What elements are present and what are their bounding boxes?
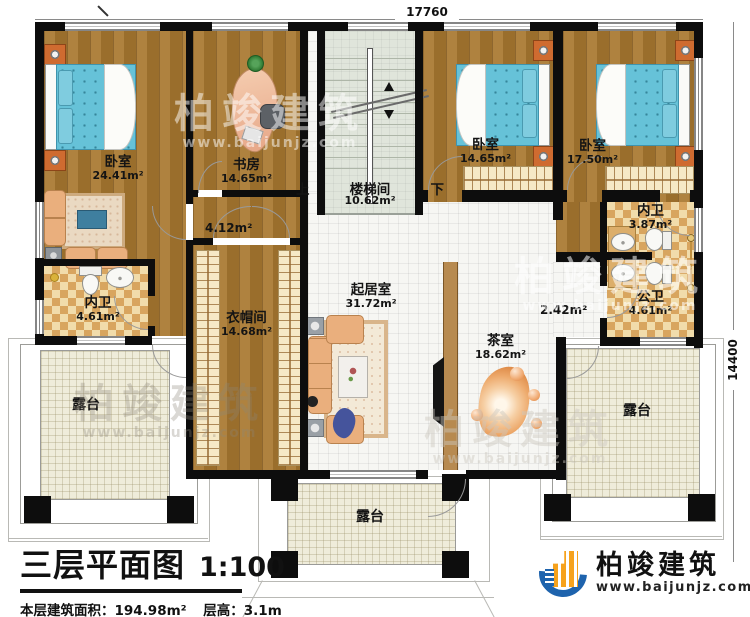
- wall: [553, 190, 563, 220]
- nightstand: [675, 146, 696, 167]
- scale-label: 1:100: [199, 552, 285, 583]
- table-runner: [77, 210, 107, 229]
- wall: [600, 262, 607, 286]
- terrace-left-floor: [40, 350, 170, 500]
- room-label-bedroom-right: 卧室 17.50m²: [545, 139, 640, 166]
- room-area: 14.65m²: [193, 173, 300, 185]
- wall: [290, 238, 300, 245]
- dimension-label-right: 14400: [726, 330, 742, 390]
- room-label-bedroom-mid: 卧室 14.65m²: [438, 138, 533, 165]
- bed-pillow: [522, 104, 537, 138]
- stairwell-area: 10.62m²: [296, 195, 444, 207]
- bed-blanket: [456, 64, 486, 146]
- hall-left-area: 4.12m²: [205, 221, 252, 235]
- bed-blanket: [104, 64, 136, 150]
- room-name: 卧室: [579, 138, 606, 154]
- page-title: 三层平面图: [20, 540, 185, 586]
- floor-drain: [50, 273, 59, 282]
- wall: [193, 238, 213, 245]
- wall: [35, 336, 77, 345]
- wall: [556, 252, 607, 262]
- floor-height-label: 层高：3.1m: [203, 603, 281, 617]
- room-area: 31.72m²: [311, 298, 431, 310]
- room-name: 茶室: [487, 333, 514, 349]
- room-area: 14.68m²: [193, 326, 300, 338]
- toilet-tank: [662, 231, 672, 250]
- dimension-tick: [97, 5, 108, 16]
- window: [35, 202, 44, 258]
- room-name: 书房: [233, 157, 260, 173]
- wall: [186, 470, 330, 479]
- bed-pillow: [662, 69, 677, 103]
- towel-rail: [690, 240, 692, 286]
- terrace-right-pillar: [544, 494, 571, 521]
- terrace-left-pillar: [24, 496, 51, 523]
- armchair: [326, 315, 364, 344]
- wall: [686, 337, 703, 346]
- window: [640, 337, 686, 346]
- window: [598, 22, 676, 31]
- floor-cushion: [471, 409, 483, 421]
- room-area: 3.87m²: [607, 219, 694, 231]
- bathroom-sink: [611, 264, 635, 282]
- room-area: 4.61m²: [607, 305, 694, 317]
- bed-pillow: [58, 70, 73, 106]
- room-name: 起居室: [351, 282, 392, 298]
- wall: [186, 240, 193, 479]
- title-underline: [20, 589, 242, 593]
- window: [694, 58, 703, 150]
- room-area: 24.41m²: [62, 170, 174, 182]
- wardrobe: [278, 250, 302, 466]
- room-label-terrace-center: 露台: [305, 510, 435, 526]
- terrace-right-apron-line: [540, 536, 722, 537]
- wall: [300, 193, 308, 479]
- window: [65, 22, 160, 31]
- room-label-living: 起居室 31.72m²: [311, 283, 431, 310]
- room-name: 内卫: [85, 295, 112, 311]
- plant: [247, 55, 264, 72]
- bathroom-sink: [611, 233, 635, 251]
- room-label-terrace-left: 露台: [26, 398, 146, 414]
- floor-cushion: [531, 418, 542, 429]
- room-area: 4.61m²: [48, 311, 148, 323]
- floor-cushion: [510, 367, 524, 381]
- logo-mark-icon: [538, 548, 588, 598]
- terrace-left-apron-line: [8, 538, 208, 539]
- logo-website: www.baijunjz.com: [596, 580, 750, 595]
- coffee-table: [338, 356, 368, 398]
- window: [444, 22, 530, 31]
- room-name: 衣帽间: [226, 310, 267, 326]
- room-name: 卧室: [105, 154, 132, 170]
- wall: [600, 318, 607, 337]
- toilet-tank: [662, 265, 672, 284]
- bed-pillow: [522, 69, 537, 103]
- window: [212, 22, 288, 31]
- floor-area-label: 本层建筑面积：194.98m²: [20, 603, 187, 617]
- wall: [600, 337, 640, 346]
- window: [330, 470, 416, 479]
- room-label-ensuite-left: 内卫 4.61m²: [48, 296, 148, 323]
- logo-company-name: 柏竣建筑: [596, 551, 750, 581]
- room-label-tea: 茶室 18.62m²: [448, 334, 553, 361]
- wall: [462, 190, 556, 202]
- wall: [44, 259, 155, 266]
- room-label-bedroom-left: 卧室 24.41m²: [62, 155, 174, 182]
- wall: [416, 470, 428, 479]
- floor-cushion: [528, 389, 540, 401]
- bathroom-sink: [106, 267, 134, 288]
- hall-right-area: 2.42m²: [540, 303, 587, 317]
- side-table: [306, 317, 324, 335]
- terrace-right-pillar: [688, 494, 715, 521]
- room-name: 内卫: [637, 203, 664, 219]
- wall: [607, 252, 652, 260]
- wall: [466, 470, 566, 479]
- floor-lamp: [307, 396, 318, 407]
- stair-direction-arrow: [384, 110, 394, 119]
- dimension-line-top: [35, 19, 703, 20]
- loveseat: [44, 190, 66, 246]
- wardrobe: [196, 250, 220, 466]
- wall: [300, 22, 308, 193]
- wall: [556, 337, 566, 480]
- room-label-study: 书房 14.65m²: [193, 158, 300, 185]
- bed-pillow: [58, 108, 73, 144]
- wall: [148, 326, 155, 336]
- wall: [222, 190, 300, 197]
- tv-icon: [433, 357, 444, 427]
- terrace-center-pillar: [442, 551, 469, 578]
- dimension-line-right: [733, 22, 734, 562]
- room-label-cloakroom: 衣帽间 14.68m²: [193, 311, 300, 338]
- terrace-center-apron-line: [474, 580, 495, 617]
- window: [35, 300, 44, 334]
- wall: [186, 31, 193, 204]
- outer-wall-left: [35, 31, 44, 345]
- floor-plan-canvas: 17760 14400: [0, 0, 750, 617]
- room-area: 14.65m²: [438, 153, 533, 165]
- bed-blanket: [596, 64, 626, 146]
- window: [694, 208, 703, 252]
- nightstand: [533, 40, 554, 61]
- company-logo: 柏竣建筑 www.baijunjz.com: [538, 548, 750, 598]
- wall: [148, 266, 155, 296]
- vestibule-floor: [553, 262, 607, 337]
- wall: [125, 336, 152, 345]
- wall: [600, 202, 607, 252]
- living-strip-floor: [308, 31, 317, 193]
- stair-landing-edge: [325, 213, 415, 215]
- wall: [690, 190, 694, 202]
- room-area: 17.50m²: [545, 154, 640, 166]
- room-name: 公卫: [637, 289, 664, 305]
- nightstand: [675, 40, 696, 61]
- stair-direction-arrow: [384, 82, 394, 91]
- room-name: 卧室: [472, 137, 499, 153]
- window: [348, 22, 408, 31]
- terrace-left-pillar: [167, 496, 194, 523]
- wall: [602, 190, 660, 202]
- room-label-ensuite-right: 内卫 3.87m²: [607, 204, 694, 231]
- side-table: [306, 419, 324, 437]
- bed-pillow: [662, 104, 677, 138]
- room-label-public-bath: 公卫 4.61m²: [607, 290, 694, 317]
- room-label-terrace-right: 露台: [577, 404, 697, 420]
- window: [77, 336, 125, 345]
- nightstand: [44, 44, 66, 65]
- wall: [563, 190, 567, 202]
- tv-wall: [443, 262, 458, 470]
- dimension-label-top: 17760: [395, 5, 459, 20]
- title-block: 三层平面图 1:100 本层建筑面积：194.98m² 层高：3.1m: [20, 540, 320, 617]
- desk-chair: [260, 104, 285, 129]
- room-area: 18.62m²: [448, 349, 553, 361]
